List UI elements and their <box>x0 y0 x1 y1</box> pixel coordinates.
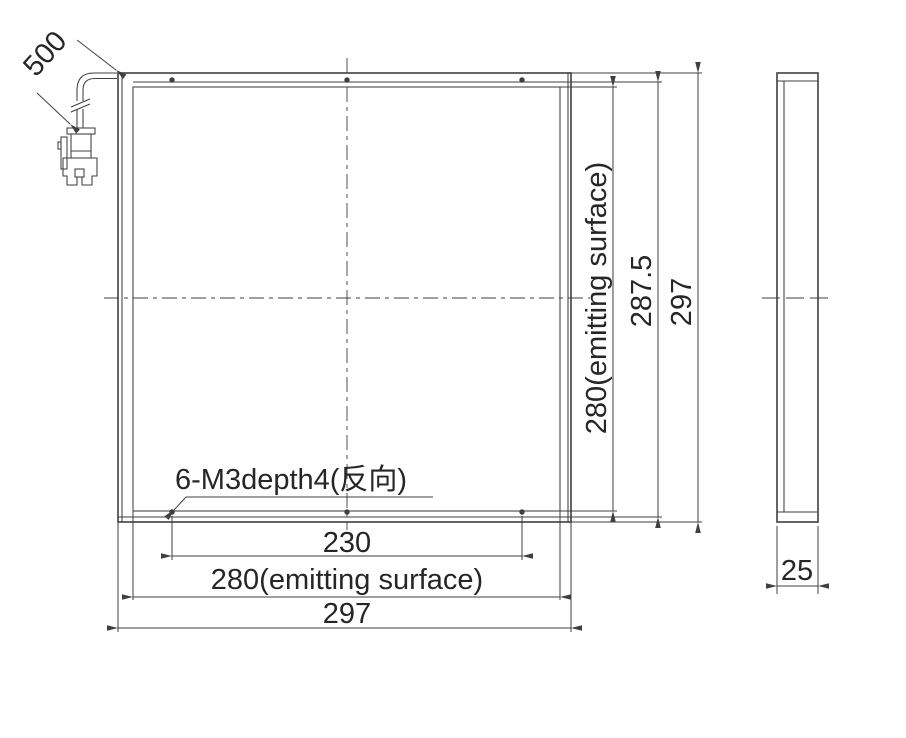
dim-label-hole-spacing: 230 <box>323 527 371 559</box>
dim-label-emitting-width: 280(emitting surface) <box>211 564 483 596</box>
panel-light-dimension-drawing: 500 6-M3depth4(反向) 280(emitting surface)… <box>0 0 906 738</box>
dim-cable-length: 500 <box>17 25 116 124</box>
connector-housing <box>63 158 97 185</box>
dim-emitting-width: 280(emitting surface) <box>133 564 560 597</box>
emitting-surface-outline <box>133 87 560 511</box>
dim-overall-width: 297 <box>118 598 571 630</box>
mounting-hole <box>169 77 174 82</box>
dim-emitting-height: 280(emitting surface) <box>581 87 613 511</box>
dim-label-emitting-height: 280(emitting surface) <box>581 162 613 434</box>
mounting-hole <box>169 509 174 514</box>
side-view: 25 <box>762 73 833 594</box>
dim-line-500-upper <box>77 40 116 70</box>
dim-label-mounting-height: 287.5 <box>626 255 658 328</box>
dim-line-500-lower <box>37 93 70 124</box>
thread-note: 6-M3depth4(反向) <box>174 463 433 510</box>
cable-inner-line <box>83 79 117 129</box>
cable-break-mark <box>71 99 90 112</box>
connector-collar <box>67 128 95 134</box>
mounting-hole <box>519 77 524 82</box>
thread-note-label: 6-M3depth4(反向) <box>175 463 407 496</box>
dim-label-overall-width: 297 <box>323 598 371 630</box>
dim-overall-height: 297 <box>666 73 698 522</box>
cable-and-connector <box>58 73 117 185</box>
dim-label-cable-length: 500 <box>17 25 73 82</box>
dim-mounting-height: 287.5 <box>626 82 658 517</box>
technical-drawing-canvas: 500 6-M3depth4(反向) 280(emitting surface)… <box>0 0 906 738</box>
dim-hole-spacing: 230 <box>172 527 522 559</box>
dim-label-overall-height: 297 <box>666 278 698 326</box>
dim-label-thickness: 25 <box>781 555 813 587</box>
mounting-hole <box>519 509 524 514</box>
side-outer-outline <box>777 73 818 522</box>
connector-latch <box>61 137 67 169</box>
thread-note-leader <box>174 497 433 510</box>
connector-body <box>71 134 91 158</box>
dim-thickness: 25 <box>777 555 818 587</box>
front-outer-frame <box>118 73 571 522</box>
connector-notch <box>75 169 84 177</box>
connector-latch-nub <box>58 142 61 149</box>
